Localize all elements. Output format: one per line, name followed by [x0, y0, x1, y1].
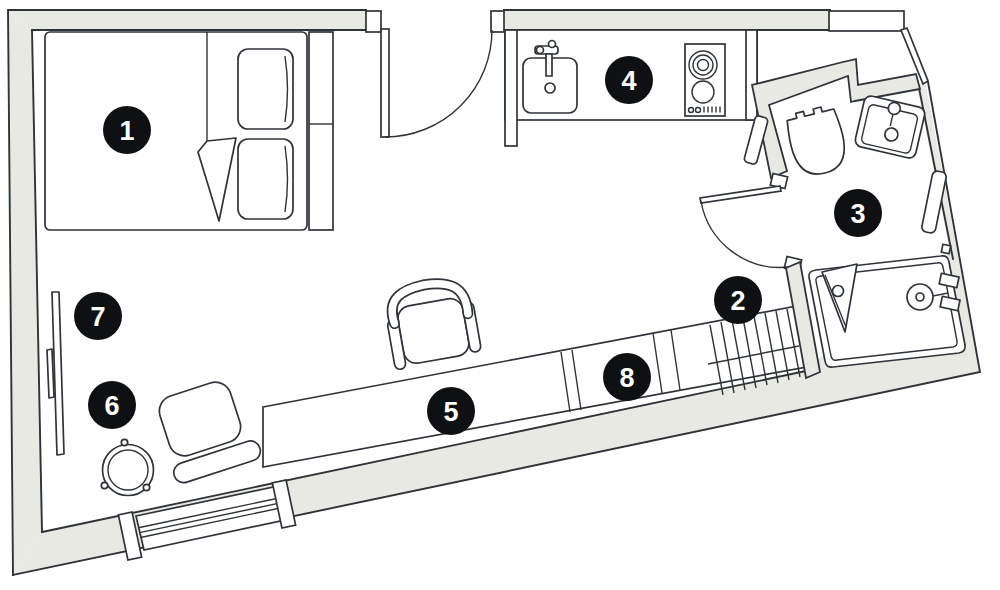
bathroom-door-leaf — [700, 186, 781, 203]
chair-seat — [396, 297, 471, 366]
svg-text:2: 2 — [730, 286, 745, 316]
marker-7[interactable]: 7 — [74, 292, 122, 340]
entrance-door — [381, 29, 492, 137]
wardrobe — [309, 32, 333, 230]
pillow — [238, 49, 293, 129]
bed-area — [45, 32, 333, 230]
kitchen-sink-drain — [545, 83, 555, 93]
marker-4[interactable]: 4 — [605, 56, 653, 104]
marker-5[interactable]: 5 — [427, 387, 475, 435]
shower-drain — [833, 286, 844, 297]
entrance-door-leaf — [381, 29, 389, 137]
marker-1[interactable]: 1 — [103, 106, 151, 154]
table-leg — [143, 484, 149, 490]
marker-3[interactable]: 3 — [834, 189, 882, 237]
floor-plan-drawing: 1 2 3 4 5 6 7 8 — [0, 0, 1000, 590]
top-window — [829, 11, 904, 31]
wall-top-right — [504, 10, 830, 30]
entrance-door-swing-arc — [385, 30, 492, 137]
bathroom-door-swing-arc — [701, 201, 788, 267]
svg-text:4: 4 — [621, 66, 636, 96]
bathroom-door — [700, 173, 802, 271]
mirror — [47, 292, 64, 455]
table-leg — [121, 439, 127, 445]
marker-2[interactable]: 2 — [714, 276, 762, 324]
svg-text:8: 8 — [619, 363, 634, 393]
door-jamb-left — [366, 11, 381, 32]
kitchen-counter-end-panel — [746, 30, 757, 120]
door-jamb-right — [491, 11, 504, 32]
side-table — [101, 439, 153, 495]
stove — [685, 44, 725, 116]
pillow — [238, 139, 293, 219]
svg-text:5: 5 — [443, 397, 458, 427]
shower — [809, 256, 965, 367]
wall-top-left — [8, 10, 366, 30]
bottom-window — [118, 480, 295, 560]
marker-6[interactable]: 6 — [88, 381, 136, 429]
wall-fixture — [941, 244, 950, 253]
toilet — [784, 104, 851, 180]
floor-plan: 1 2 3 4 5 6 7 8 — [0, 0, 1000, 590]
table-leg — [101, 482, 107, 488]
armchair — [150, 375, 262, 486]
bathroom-sink — [854, 95, 926, 160]
svg-text:6: 6 — [104, 391, 119, 421]
svg-text:3: 3 — [850, 199, 865, 229]
marker-8[interactable]: 8 — [603, 353, 651, 401]
svg-text:1: 1 — [119, 116, 134, 146]
svg-text:7: 7 — [90, 302, 105, 332]
kitchen-counter-end-panel — [505, 30, 517, 146]
desk-chair — [382, 277, 482, 370]
